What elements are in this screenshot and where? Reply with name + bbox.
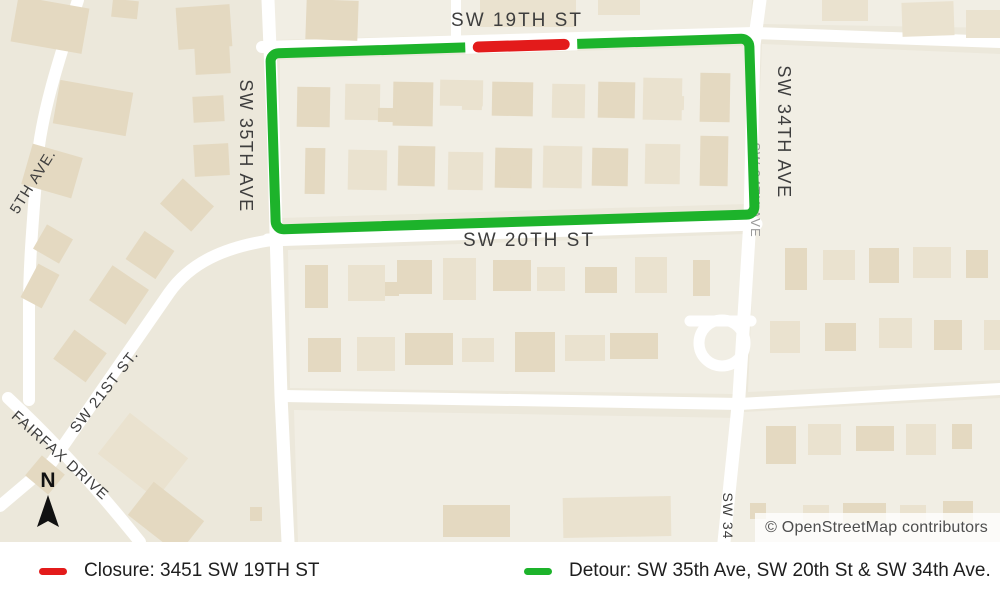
map: SW 34TH AVESW 19TH STSW 20TH STSW 35TH A… <box>0 0 1000 542</box>
building <box>825 323 856 351</box>
closure-label: Closure: 3451 SW 19TH ST <box>84 560 319 582</box>
building <box>808 424 841 455</box>
building <box>405 333 453 365</box>
building <box>552 84 586 119</box>
street-label: SW 34 <box>720 492 736 539</box>
building <box>443 258 476 300</box>
building <box>398 146 436 187</box>
building <box>305 265 328 308</box>
building <box>193 143 230 177</box>
building <box>192 95 224 123</box>
building <box>194 45 230 75</box>
building <box>448 152 484 191</box>
building <box>693 260 710 296</box>
closure-line <box>478 44 564 47</box>
building <box>393 82 434 127</box>
building <box>563 496 672 538</box>
building <box>966 250 988 278</box>
building <box>493 260 531 291</box>
north-arrow-icon <box>37 495 59 529</box>
building <box>543 146 583 189</box>
legend: Closure: 3451 SW 19TH ST Detour: SW 35th… <box>0 542 1000 600</box>
detour-label: Detour: SW 35th Ave, SW 20th St & SW 34t… <box>569 560 991 582</box>
building <box>770 321 800 353</box>
building <box>537 267 565 291</box>
building <box>901 1 954 37</box>
street-label: SW 35TH AVE <box>236 79 256 212</box>
building <box>879 318 912 348</box>
building <box>610 333 658 359</box>
building <box>357 337 395 371</box>
building <box>952 424 972 449</box>
building <box>700 73 731 123</box>
legend-item-detour: Detour: SW 35th Ave, SW 20th St & SW 34t… <box>524 542 991 600</box>
city-block <box>280 46 746 218</box>
road-closure-notice: SW 34TH AVESW 19TH STSW 20TH STSW 35TH A… <box>0 0 1000 600</box>
building <box>785 248 807 290</box>
building <box>635 257 667 293</box>
building <box>111 0 139 19</box>
building <box>592 148 629 187</box>
building <box>176 4 233 50</box>
building <box>598 0 640 15</box>
building <box>984 320 1000 350</box>
building <box>645 144 681 185</box>
city-block <box>762 0 1000 28</box>
closure-line-swatch <box>39 568 67 575</box>
north-label: N <box>40 469 55 492</box>
building <box>462 94 482 110</box>
building <box>443 505 510 537</box>
building <box>511 166 527 182</box>
building <box>565 335 605 361</box>
building <box>305 0 358 41</box>
building <box>297 87 331 128</box>
building <box>869 248 899 283</box>
building <box>668 96 684 110</box>
building <box>822 0 868 21</box>
building <box>348 150 388 191</box>
building <box>378 108 396 122</box>
detour-line-swatch <box>524 568 552 575</box>
building <box>250 507 262 521</box>
building <box>966 10 1000 38</box>
building <box>492 82 534 117</box>
map-canvas: SW 34TH AVESW 19TH STSW 20TH STSW 35TH A… <box>0 0 1000 542</box>
building <box>348 265 385 301</box>
building <box>700 136 729 186</box>
building <box>462 338 494 362</box>
street-label: SW 20TH ST <box>463 230 595 251</box>
building <box>397 260 432 294</box>
building <box>766 426 796 464</box>
building <box>934 320 962 350</box>
building <box>345 84 381 121</box>
building <box>906 424 936 455</box>
street-label: SW 19TH ST <box>451 10 583 31</box>
building <box>308 338 341 372</box>
map-attribution: © OpenStreetMap contributors <box>755 513 1000 542</box>
building <box>528 352 542 366</box>
building <box>823 250 855 280</box>
building <box>856 426 894 451</box>
legend-item-closure: Closure: 3451 SW 19TH ST <box>39 542 319 600</box>
building <box>305 148 326 194</box>
building <box>585 267 617 293</box>
north-arrow: N <box>36 470 60 529</box>
building <box>385 282 399 296</box>
building <box>913 247 951 278</box>
building <box>598 82 636 119</box>
street-label: SW 34TH AVE <box>774 65 794 198</box>
